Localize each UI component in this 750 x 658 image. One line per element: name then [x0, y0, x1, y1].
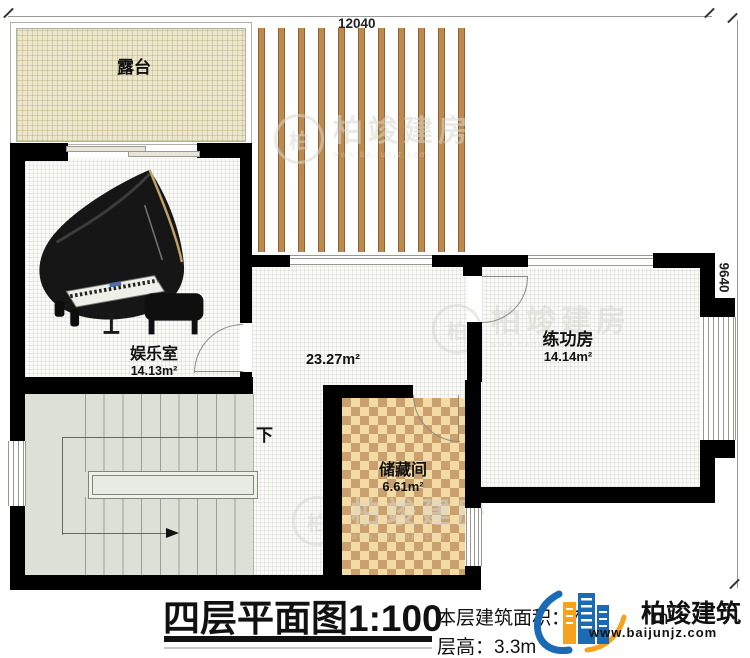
wall	[10, 377, 253, 394]
staircase	[23, 394, 254, 575]
floor-height-line: 层高：3.3m	[437, 632, 536, 658]
stair-direction-arrow-icon	[166, 528, 179, 538]
pergola-slats	[253, 28, 469, 252]
wall	[463, 267, 482, 276]
width-dimension-label: 12040	[338, 16, 376, 31]
wall	[480, 487, 715, 503]
plan-title: 四层平面图1:100	[163, 588, 443, 642]
sliding-door	[128, 151, 200, 157]
wall	[10, 143, 25, 441]
floor-plan-canvas: 12040 9640 露台 柏 柏竣建房 www.baijunjz.com 柏 …	[0, 0, 750, 658]
title-underline-thin	[164, 647, 432, 649]
wall	[240, 155, 252, 323]
wall	[465, 380, 481, 508]
wall	[653, 253, 715, 268]
practice-room-label: 练功房 14.14m²	[520, 330, 616, 364]
title-underline	[164, 636, 432, 642]
wall	[700, 268, 715, 298]
entertainment-room-label: 娱乐室 14.13m²	[108, 346, 200, 379]
stair-walk-line	[62, 533, 168, 534]
wall	[700, 458, 715, 487]
dim-tick	[729, 579, 740, 590]
grand-piano-image	[26, 166, 234, 352]
window	[466, 508, 482, 566]
stair-walk-line	[62, 437, 254, 535]
wall	[252, 255, 290, 267]
wall	[467, 322, 482, 382]
floor-height-label: 层高：	[437, 637, 494, 658]
terrace-label: 露台	[98, 58, 170, 78]
door-leaf	[458, 395, 459, 441]
wall	[342, 385, 413, 398]
brand-website: www.baijunjz.com	[589, 625, 717, 640]
stair-down-label: 下	[256, 426, 273, 446]
terrace-floor	[16, 28, 246, 142]
door-leaf	[194, 371, 243, 372]
window	[8, 441, 26, 506]
wall	[323, 385, 342, 575]
brand-logo-icon	[528, 588, 640, 654]
height-dimension-label: 9640	[717, 255, 732, 301]
plan-title-text: 四层平面图	[163, 598, 348, 639]
door-leaf	[482, 276, 528, 277]
window	[528, 255, 653, 266]
window	[290, 255, 432, 265]
storage-room-label: 储藏间 6.61m²	[362, 462, 444, 495]
bay-window	[703, 317, 736, 440]
right-dimension-line	[737, 20, 738, 588]
wall	[700, 298, 735, 317]
plan-scale-text: 1:100	[348, 598, 443, 639]
wall	[700, 440, 735, 458]
wall	[10, 143, 68, 161]
wall	[432, 255, 528, 267]
hall-area-label: 23.27m²	[298, 352, 368, 369]
